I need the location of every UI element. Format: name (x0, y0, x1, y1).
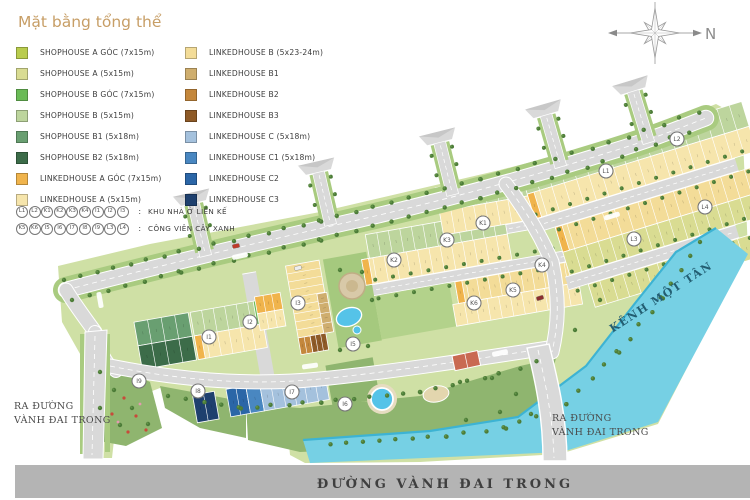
key-code-circle: I2 (104, 206, 116, 218)
block-marker-I5: I5 (346, 337, 360, 351)
legend-item: LINKEDHOUSE B2 (185, 84, 323, 105)
flower-bed (134, 414, 137, 417)
legend-key-row: L1L2K1K2K3K4I1I2I3:KHU NHÀ Ở LIÊN KẾ (16, 203, 235, 220)
legend-swatch (185, 152, 197, 164)
tree-icon (426, 435, 430, 439)
tree-icon (496, 171, 500, 175)
tree-icon (354, 210, 358, 214)
key-code-circle: L1 (16, 206, 28, 218)
tree-icon (688, 254, 692, 258)
ring-road-label: ĐƯỜNG VÀNH ĐAI TRONG (105, 477, 750, 492)
block-marker-L4: L4 (698, 200, 712, 214)
tree-icon (393, 437, 397, 441)
key-separator: : (138, 224, 141, 233)
flower-bed (117, 421, 120, 424)
block-marker-label: K6 (470, 300, 478, 307)
tree-icon (534, 414, 538, 418)
tree-icon (461, 430, 465, 434)
tree-icon (267, 251, 271, 255)
legend-item-label: SHOPHOUSE A GÓC (7x15m) (40, 48, 154, 57)
tree-icon (617, 350, 621, 354)
tree-icon (159, 274, 163, 278)
exit-road-label-line: RA ĐƯỜNG (14, 400, 111, 414)
tree-icon (202, 400, 206, 404)
legend-swatch (185, 131, 197, 143)
block-marker-label: I6 (342, 401, 348, 408)
tree-icon (465, 379, 469, 383)
exit-road-left (80, 330, 110, 459)
tree-icon (95, 270, 99, 274)
block-marker-K3: K3 (440, 233, 454, 247)
key-code-circle: K2 (54, 206, 66, 218)
tree-icon (514, 186, 518, 190)
tree-icon (498, 410, 502, 414)
block-marker-L1: L1 (599, 164, 613, 178)
tree-icon (564, 402, 568, 406)
legend-swatch (16, 131, 28, 143)
legend-item-label: SHOPHOUSE B GÓC (7x15m) (40, 90, 154, 99)
legend-item: LINKEDHOUSE C (5x18m) (185, 126, 323, 147)
tree-icon (517, 419, 521, 423)
block-marker-label: K5 (509, 287, 517, 294)
tree-icon (367, 394, 371, 398)
legend-item: LINKEDHOUSE C1 (5x18m) (185, 147, 323, 168)
legend-swatch (16, 68, 28, 80)
tree-icon (679, 268, 683, 272)
tree-icon (697, 110, 701, 114)
legend-item-label: LINKEDHOUSE C (5x18m) (209, 132, 310, 141)
tree-icon (533, 161, 537, 165)
block-marker-L2: L2 (670, 132, 684, 146)
tree-icon (197, 247, 201, 251)
tree-icon (301, 242, 305, 246)
legend-swatch (16, 173, 28, 185)
tree-icon (591, 376, 595, 380)
key-code-circle: I9 (92, 223, 104, 235)
tree-icon (598, 298, 602, 302)
tree-icon (654, 143, 658, 147)
key-code-circle: I8 (79, 223, 91, 235)
tree-icon (146, 422, 150, 426)
tree-icon (389, 200, 393, 204)
block-marker-I8: I8 (191, 384, 205, 398)
compass-north-label: N (705, 25, 716, 43)
block-marker-label: I2 (247, 319, 253, 326)
key-code-circle: I3 (117, 206, 129, 218)
tree-icon (529, 412, 533, 416)
tree-icon (246, 234, 250, 238)
tree-icon (496, 371, 500, 375)
exit-road-label-right: RA ĐƯỜNG VÀNH ĐAI TRONG (552, 412, 649, 440)
tree-icon (662, 123, 666, 127)
legend-swatch (16, 89, 28, 101)
block-marker-I2: I2 (243, 315, 257, 329)
exit-road-label-left: RA ĐƯỜNG VÀNH ĐAI TRONG (14, 400, 111, 428)
tree-icon (389, 219, 393, 223)
tree-icon (301, 223, 305, 227)
tree-icon (144, 257, 148, 261)
key-row-label: KHU NHÀ Ở LIÊN KẾ (148, 207, 227, 216)
tree-icon (553, 157, 557, 161)
legend-item-label: LINKEDHOUSE C1 (5x18m) (209, 153, 315, 162)
tree-icon (385, 393, 389, 397)
tree-icon (433, 386, 437, 390)
legend-item: SHOPHOUSE A GÓC (7x15m) (16, 42, 162, 63)
legend-item: SHOPHOUSE B2 (5x18m) (16, 147, 162, 168)
tree-icon (370, 223, 374, 227)
tree-icon (338, 348, 342, 352)
tree-icon (642, 128, 646, 132)
tree-icon (634, 147, 638, 151)
legend-item-label: LINKEDHOUSE B (5x23-24m) (209, 48, 323, 57)
legend-swatch (16, 110, 28, 122)
block-marker-label: L1 (602, 168, 609, 175)
tree-icon (354, 229, 358, 233)
tree-icon (501, 425, 505, 429)
tree-icon (411, 436, 415, 440)
tree-icon (335, 214, 339, 218)
tree-icon (111, 265, 115, 269)
tree-icon (424, 210, 428, 214)
tree-icon (483, 376, 487, 380)
tree-icon (333, 398, 337, 402)
tree-icon (534, 359, 538, 363)
tree-icon (573, 328, 577, 332)
exit-road-label-line: VÀNH ĐAI TRONG (552, 426, 649, 440)
block-marker-label: I5 (350, 341, 356, 348)
tree-icon (495, 190, 499, 194)
key-code-circle: L2 (29, 206, 41, 218)
tree-icon (268, 403, 272, 407)
page-title: Mặt bằng tổng thể (18, 13, 161, 31)
flower-bed (126, 430, 129, 433)
block-marker-K4: K4 (535, 258, 549, 272)
legend-key-rows: L1L2K1K2K3K4I1I2I3:KHU NHÀ Ở LIÊN KẾK5K6… (16, 203, 235, 237)
tree-icon (370, 298, 374, 302)
tree-icon (514, 392, 518, 396)
tree-icon (627, 135, 631, 139)
tree-icon (460, 200, 464, 204)
compass-rose-icon (608, 2, 702, 64)
tree-icon (236, 405, 240, 409)
tree-icon (319, 400, 323, 404)
legend-swatch (185, 68, 197, 80)
tree-icon (460, 181, 464, 185)
block-marker-label: I1 (206, 334, 212, 341)
key-row-label: CÔNG VIÊN CÂY XANH (148, 224, 235, 233)
key-code-circle: I1 (92, 206, 104, 218)
flower-bed (144, 428, 147, 431)
flower-bed (139, 403, 142, 406)
tree-icon (78, 274, 82, 278)
key-code-circle: K4 (79, 206, 91, 218)
tree-icon (143, 280, 147, 284)
legend-item-label: LINKEDHOUSE B2 (209, 90, 279, 99)
key-code-circle: L3 (104, 223, 116, 235)
key-code-circle: K3 (66, 206, 78, 218)
legend-swatch (16, 47, 28, 59)
block-marker-I3: I3 (291, 296, 305, 310)
tree-icon (335, 233, 339, 237)
key-code-circle: L4 (117, 223, 129, 235)
block-marker-label: I3 (295, 300, 301, 307)
block-marker-I6: I6 (338, 397, 352, 411)
block-marker-K2: K2 (387, 253, 401, 267)
block-marker-label: K2 (390, 257, 398, 264)
tree-icon (406, 214, 410, 218)
tree-icon (118, 423, 122, 427)
tree-icon (130, 406, 134, 410)
legend-swatch (185, 89, 197, 101)
legend-column-shophouse: SHOPHOUSE A GÓC (7x15m)SHOPHOUSE A (5x15… (16, 42, 162, 210)
tree-icon (418, 390, 422, 394)
tree-icon (565, 169, 569, 173)
tree-icon (606, 140, 610, 144)
tree-icon (162, 254, 166, 258)
legend-item: SHOPHOUSE B (5x15m) (16, 105, 162, 126)
tree-icon (478, 196, 482, 200)
tree-icon (300, 400, 304, 404)
tree-icon (677, 115, 681, 119)
tree-icon (424, 191, 428, 195)
tree-icon (687, 130, 691, 134)
tree-icon (602, 362, 606, 366)
tree-icon (591, 147, 595, 151)
legend-item-label: SHOPHOUSE B1 (5x18m) (40, 132, 139, 141)
tree-icon (366, 344, 370, 348)
tree-icon (338, 268, 342, 272)
tree-icon (451, 383, 455, 387)
tree-icon (443, 186, 447, 190)
legend-item-label: LINKEDHOUSE C2 (209, 174, 279, 183)
key-code-circle: K6 (29, 223, 41, 235)
tree-icon (406, 195, 410, 199)
legend-item: SHOPHOUSE B GÓC (7x15m) (16, 84, 162, 105)
block-marker-K6: K6 (467, 296, 481, 310)
tree-icon (401, 391, 405, 395)
legend-item-label: SHOPHOUSE B (5x15m) (40, 111, 134, 120)
tree-icon (530, 180, 534, 184)
block-marker-label: L3 (630, 236, 637, 243)
legend-swatch (185, 110, 197, 122)
tree-icon (585, 166, 589, 170)
tree-icon (211, 261, 215, 265)
tree-icon (176, 249, 180, 253)
tree-icon (211, 241, 215, 245)
tree-icon (518, 367, 522, 371)
housing-block (310, 333, 329, 353)
key-code-circle: I7 (66, 223, 78, 235)
tree-icon (106, 289, 110, 293)
tree-icon (443, 205, 447, 209)
block-marker-label: K1 (479, 220, 487, 227)
legend-item-label: SHOPHOUSE A (5x15m) (40, 69, 134, 78)
tree-icon (550, 176, 554, 180)
tree-icon (600, 159, 604, 163)
tree-icon (352, 397, 356, 401)
tree-icon (319, 238, 323, 242)
tree-icon (444, 434, 448, 438)
block-marker-K5: K5 (506, 283, 520, 297)
legend-item: LINKEDHOUSE B (5x23-24m) (185, 42, 323, 63)
tree-icon (344, 440, 348, 444)
master-plan-page: NKÊNH MỘT TÂNL1L2K1K2K3K4I1I2I3K5K6I5I6I… (0, 0, 750, 500)
legend-swatch (185, 173, 197, 185)
tree-icon (281, 226, 285, 230)
legend-swatch (185, 47, 197, 59)
legend-swatch (16, 152, 28, 164)
tree-icon (576, 388, 580, 392)
legend-key-row: K5K6I5I6I7I8I9L3L4:CÔNG VIÊN CÂY XANH (16, 220, 235, 237)
tree-icon (516, 167, 520, 171)
tree-icon (370, 204, 374, 208)
tree-icon (232, 239, 236, 243)
tree-icon (88, 293, 92, 297)
key-code-circle: K5 (16, 223, 28, 235)
tree-icon (70, 298, 74, 302)
tree-icon (112, 388, 116, 392)
tree-icon (129, 262, 133, 266)
block-marker-label: I8 (195, 388, 201, 395)
tree-icon (490, 376, 494, 380)
tree-icon (458, 380, 462, 384)
legend-item: LINKEDHOUSE C2 (185, 168, 323, 189)
legend-item-label: LINKEDHOUSE A GÓC (7x15m) (40, 174, 162, 183)
legend-item-label: SHOPHOUSE B2 (5x18m) (40, 153, 139, 162)
legend-item: SHOPHOUSE B1 (5x18m) (16, 126, 162, 147)
block-marker-L3: L3 (627, 232, 641, 246)
tree-icon (569, 150, 573, 154)
tree-icon (360, 270, 364, 274)
tree-icon (328, 442, 332, 446)
exit-road-label-line: VÀNH ĐAI TRONG (14, 414, 111, 428)
flower-bed (122, 396, 125, 399)
block-marker-I7: I7 (285, 385, 299, 399)
exit-road-label-line: RA ĐƯỜNG (552, 412, 649, 426)
legend-item: LINKEDHOUSE B1 (185, 63, 323, 84)
block-marker-label: I7 (289, 389, 295, 396)
block-marker-label: K4 (538, 262, 546, 269)
tree-icon (361, 440, 365, 444)
legend-item: LINKEDHOUSE A GÓC (7x15m) (16, 168, 162, 189)
tree-icon (219, 402, 223, 406)
block-marker-I1: I1 (202, 330, 216, 344)
block-marker-label: L2 (673, 136, 680, 143)
tree-icon (287, 403, 291, 407)
tree-icon (484, 429, 488, 433)
tree-icon (255, 405, 259, 409)
legend-column-linkedhouse: LINKEDHOUSE B (5x23-24m)LINKEDHOUSE B1LI… (185, 42, 323, 210)
key-separator: : (138, 207, 141, 216)
swimming-pool (371, 388, 393, 410)
legend-item: LINKEDHOUSE B3 (185, 105, 323, 126)
tree-icon (464, 418, 468, 422)
tree-icon (620, 155, 624, 159)
tree-icon (636, 322, 640, 326)
tree-icon (197, 267, 201, 271)
key-code-circle: K1 (41, 206, 53, 218)
tree-icon (478, 177, 482, 181)
tree-icon (281, 245, 285, 249)
tree-icon (62, 278, 66, 282)
key-code-circle: I6 (54, 223, 66, 235)
tree-icon (377, 438, 381, 442)
tree-icon (98, 370, 102, 374)
block-marker-label: I9 (136, 378, 142, 385)
tree-icon (123, 283, 127, 287)
legend-item-label: LINKEDHOUSE B3 (209, 111, 279, 120)
legend-item-label: LINKEDHOUSE B1 (209, 69, 279, 78)
key-code-circle: I5 (41, 223, 53, 235)
legend-item: SHOPHOUSE A (5x15m) (16, 63, 162, 84)
block-marker-label: L4 (701, 204, 708, 211)
block-marker-label: K3 (443, 237, 451, 244)
tree-icon (628, 337, 632, 341)
tree-icon (176, 269, 180, 273)
tree-icon (166, 394, 170, 398)
block-marker-K1: K1 (476, 216, 490, 230)
tree-icon (184, 397, 188, 401)
tree-icon (698, 240, 702, 244)
block-marker-I9: I9 (132, 374, 146, 388)
tree-icon (319, 219, 323, 223)
tree-icon (267, 231, 271, 235)
